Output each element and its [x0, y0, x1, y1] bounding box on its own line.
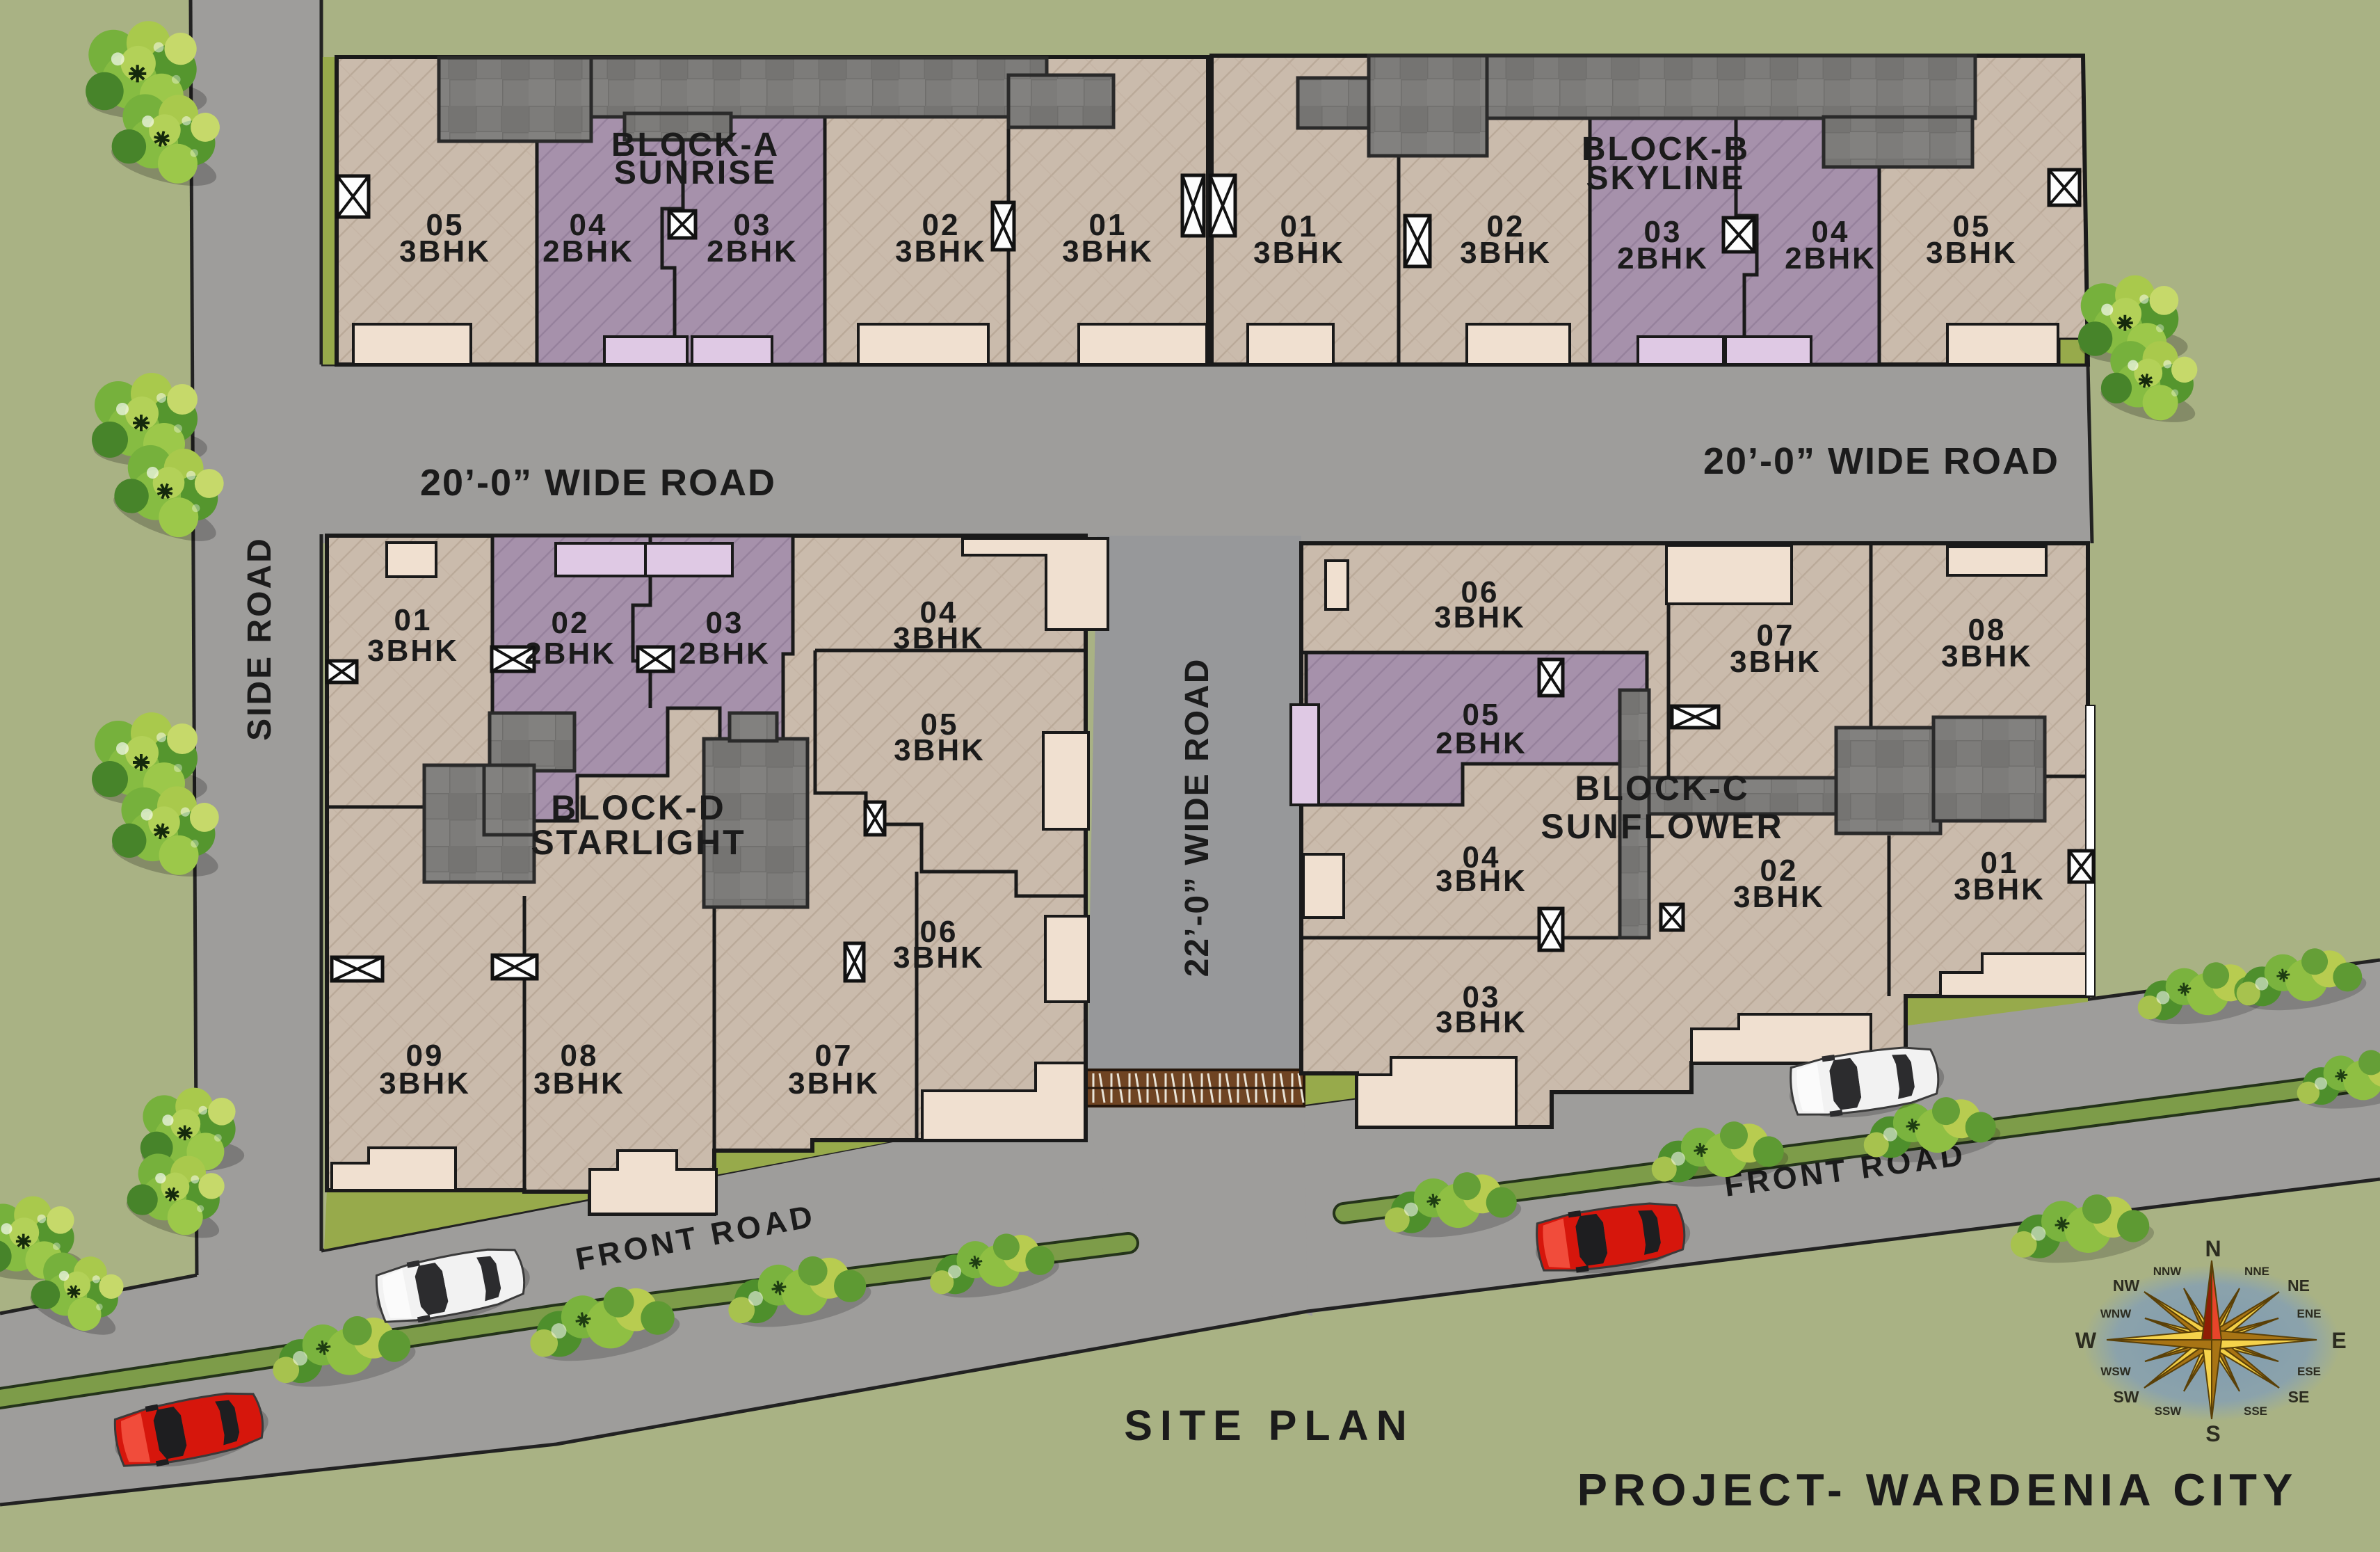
svg-text:WNW: WNW — [2100, 1307, 2132, 1320]
svg-text:SE: SE — [2288, 1388, 2310, 1406]
svg-text:ENE: ENE — [2297, 1307, 2322, 1320]
svg-text:22’-0” WIDE ROAD: 22’-0” WIDE ROAD — [1179, 658, 1216, 977]
svg-text:BLOCK-D: BLOCK-D — [551, 788, 726, 827]
svg-text:SKYLINE: SKYLINE — [1586, 160, 1745, 197]
svg-text:SSE: SSE — [2244, 1405, 2267, 1418]
svg-text:20’-0” WIDE ROAD: 20’-0” WIDE ROAD — [420, 462, 776, 504]
svg-text:SUNRISE: SUNRISE — [614, 154, 777, 191]
svg-text:3BHK: 3BHK — [1062, 234, 1154, 269]
svg-text:3BHK: 3BHK — [1954, 872, 2045, 906]
svg-text:3BHK: 3BHK — [379, 1066, 471, 1101]
svg-text:2BHK: 2BHK — [679, 637, 771, 671]
svg-text:3BHK: 3BHK — [1436, 1005, 1527, 1039]
svg-text:01: 01 — [394, 603, 433, 637]
svg-text:02: 02 — [552, 606, 590, 640]
svg-text:WSW: WSW — [2100, 1365, 2131, 1378]
svg-text:SW: SW — [2113, 1388, 2139, 1406]
svg-text:3BHK: 3BHK — [1460, 236, 1552, 270]
svg-text:3BHK: 3BHK — [399, 234, 491, 269]
svg-text:3BHK: 3BHK — [893, 621, 985, 655]
svg-text:SSW: SSW — [2155, 1405, 2182, 1418]
svg-text:SITE PLAN: SITE PLAN — [1124, 1402, 1415, 1449]
svg-text:03: 03 — [706, 606, 744, 640]
svg-text:2BHK: 2BHK — [707, 234, 798, 269]
svg-text:3BHK: 3BHK — [1434, 600, 1526, 634]
svg-text:2BHK: 2BHK — [1436, 726, 1527, 760]
svg-text:3BHK: 3BHK — [533, 1066, 625, 1101]
svg-text:S: S — [2205, 1421, 2220, 1446]
svg-text:3BHK: 3BHK — [1436, 864, 1527, 898]
svg-text:2BHK: 2BHK — [1785, 241, 1876, 275]
svg-text:3BHK: 3BHK — [1926, 236, 2018, 270]
svg-text:N: N — [2205, 1236, 2221, 1261]
svg-text:3BHK: 3BHK — [894, 733, 986, 767]
svg-text:PROJECT- WARDENIA CITY: PROJECT- WARDENIA CITY — [1577, 1464, 2299, 1515]
svg-text:ESE: ESE — [2297, 1365, 2321, 1378]
svg-text:3BHK: 3BHK — [895, 234, 987, 269]
svg-text:NNW: NNW — [2153, 1265, 2182, 1278]
svg-text:20’-0” WIDE ROAD: 20’-0” WIDE ROAD — [1703, 440, 2059, 482]
svg-text:2BHK: 2BHK — [524, 637, 616, 671]
svg-text:SUNFLOWER: SUNFLOWER — [1541, 807, 1783, 846]
svg-text:W: W — [2075, 1328, 2097, 1353]
svg-text:3BHK: 3BHK — [1253, 236, 1345, 270]
svg-text:NE: NE — [2287, 1277, 2310, 1295]
svg-text:NW: NW — [2113, 1277, 2140, 1295]
svg-text:SIDE ROAD: SIDE ROAD — [241, 536, 278, 741]
svg-text:2BHK: 2BHK — [542, 234, 634, 269]
svg-text:3BHK: 3BHK — [893, 941, 985, 975]
svg-text:BLOCK-C: BLOCK-C — [1575, 769, 1750, 808]
svg-text:NNE: NNE — [2244, 1265, 2269, 1278]
svg-text:3BHK: 3BHK — [788, 1066, 880, 1101]
svg-text:3BHK: 3BHK — [1733, 880, 1825, 914]
svg-text:2BHK: 2BHK — [1617, 241, 1709, 275]
svg-text:STARLIGHT: STARLIGHT — [531, 823, 746, 862]
svg-text:3BHK: 3BHK — [1941, 639, 2033, 673]
svg-text:3BHK: 3BHK — [1730, 645, 1822, 679]
svg-text:E: E — [2331, 1328, 2346, 1353]
svg-text:3BHK: 3BHK — [367, 634, 459, 668]
